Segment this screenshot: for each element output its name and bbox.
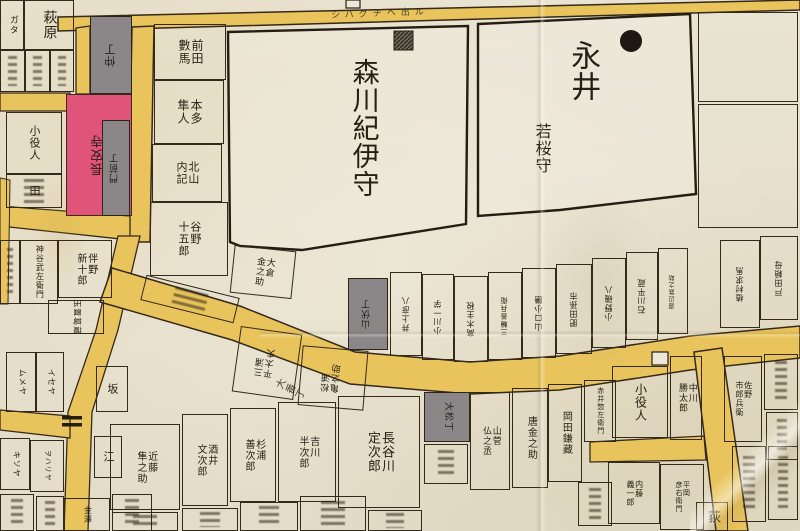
plot-akai-label: 赤井惣左衛門 <box>596 387 604 435</box>
plot-corner-1 <box>0 494 34 531</box>
plot-naito: 内藤 義一郎 <box>608 462 660 524</box>
plot-band-n4-label: 三輪善兵衛 <box>501 296 509 336</box>
plot-koyakunin-east: 小役人 <box>612 366 668 438</box>
plot-small-2 <box>25 50 50 92</box>
plot-yamasuga: 山菅 仏之丞 <box>470 392 510 490</box>
plot-sakai: 酒井 文次郎 <box>182 414 228 506</box>
plot-row2-2 <box>182 508 238 531</box>
plot-sano-label: 佐野 市郎兵衛 <box>734 381 751 417</box>
plot-ne-empty-2 <box>698 104 798 228</box>
plot-owariya: ヲハリヤ <box>30 440 64 492</box>
plot-tamaki-label: 玉置葛蔵 <box>72 299 81 335</box>
plot-band-n10-label: 植村求馬 <box>736 266 745 302</box>
plot-band-n5-label: 山口小膳 <box>535 295 544 331</box>
plot-kitayama-naiki-label: 北山 内記 <box>175 161 199 185</box>
road-left-vertical-upper <box>76 26 90 94</box>
plot-east-1 <box>764 354 798 410</box>
plot-band-n8: 石川平蔵 <box>626 252 658 340</box>
plot-kisoya-label: キソヤ <box>11 451 20 478</box>
plot-band-n11-label: 戸田頼母 <box>775 260 784 296</box>
plot-okada-kamazo-label: 岡田鎌藏 <box>560 411 571 455</box>
plot-band-n1-label: 井上彦八 <box>402 296 411 332</box>
plot-monzencho-label: 門前丁 <box>111 153 121 183</box>
plot-koyakunin-east-label: 小役人 <box>634 383 647 422</box>
plot-band-n6: 肥田孫市 <box>556 264 592 354</box>
plot-band-n4: 三輪善兵衛 <box>488 272 522 360</box>
plot-kata-label: ガタ <box>7 15 17 35</box>
plot-hagiwara: 萩原 <box>24 0 74 50</box>
plot-tamaki: 玉置葛蔵 <box>48 300 104 334</box>
plot-ne-empty-1 <box>698 12 798 102</box>
plot-mumeya: ムメヤ <box>6 352 36 412</box>
plot-band-n3-label: 高木主税 <box>467 301 476 337</box>
plot-band-n9-label: 渡辺鉄之助 <box>670 274 676 309</box>
plot-hasegawa-label: 長谷川 定次郎 <box>365 431 393 473</box>
plot-kondo-label: 近藤 隼之助 <box>134 451 156 484</box>
plot-kamiya-label: 神谷武左衛門 <box>35 245 44 299</box>
plot-yoshikawa-label: 吉川 半次郎 <box>296 436 318 469</box>
plot-band-n5: 山口小膳 <box>522 268 556 358</box>
plot-nakacho-label: 仲丁 <box>105 43 117 67</box>
plot-naito-label: 内藤 義一郎 <box>625 480 642 507</box>
plot-banno-label: 伴野 新十郎 <box>74 253 96 286</box>
edo-kiriezu-map: ガタ萩原小役人田神谷武左衛門伴野 新十郎玉置葛蔵ムメヤイセヤ坂江ヲハリヤキソヤ金… <box>0 0 800 531</box>
plot-sakai-label: 酒井 文次郎 <box>194 444 216 477</box>
plot-band-n9: 渡辺鉄之助 <box>658 248 688 334</box>
plot-band-n6-label: 肥田孫市 <box>570 291 579 327</box>
plot-kata: ガタ <box>0 0 24 50</box>
plot-maeda-kazuma: 前田 數馬 <box>154 24 226 80</box>
plot-small-1 <box>0 50 25 92</box>
plot-band-s2-label: 松浦 亀之助 <box>322 362 344 394</box>
plot-okura-kinnosuke: 大倉 金之助 <box>230 245 297 299</box>
plot-saka: 坂 <box>96 366 128 412</box>
plot-honda-hayato-label: 本多 隼人 <box>176 99 202 125</box>
plot-kisoya: キソヤ <box>0 438 30 490</box>
road-southwest-stub <box>0 410 70 438</box>
plot-nakagawa-katsutaro: 中川 勝太郎 <box>670 356 702 440</box>
label-morikawa-label: 森川紀伊守 <box>348 58 377 198</box>
road-west-stub <box>0 93 70 111</box>
label-morikawa: 森川紀伊守 <box>330 38 396 218</box>
plot-band-n7-label: 小野磯八 <box>605 285 614 321</box>
plot-kuji <box>0 240 20 304</box>
plot-band-n2-label: 小川一学 <box>434 299 443 335</box>
label-wakasanokami: 若桜守 <box>522 98 562 198</box>
plot-kanazawa: 金澤 <box>64 498 110 531</box>
plot-mumeya-label: ムメヤ <box>17 369 26 396</box>
morikawa-crest-marker <box>394 31 413 50</box>
plot-sugiura: 杉浦 善次郎 <box>230 408 276 502</box>
plot-yoshikawa: 吉川 半次郎 <box>278 402 336 502</box>
plot-iseya-label: イセヤ <box>46 369 55 396</box>
plot-koyakunin-west: 小役人 <box>6 112 62 174</box>
label-wakasanokami-label: 若桜守 <box>533 123 550 174</box>
plot-hagiwara-label: 萩原 <box>41 10 56 40</box>
plot-band-n1: 井上彦八 <box>390 272 422 356</box>
label-nagai-label: 永井 <box>566 40 598 102</box>
plot-row2-1 <box>112 512 178 531</box>
plot-kitayama-naiki: 北山 内記 <box>152 144 222 202</box>
plot-yano-jugoro-label: 谷野 十五郎 <box>177 221 201 257</box>
plot-yano-jugoro: 谷野 十五郎 <box>150 202 228 276</box>
plot-monzencho: 門前丁 <box>102 120 130 216</box>
plot-corner-2 <box>36 496 64 531</box>
plot-koyakunin-west-label: 小役人 <box>28 125 40 161</box>
plot-karakane-label: 唐金之助 <box>525 416 536 460</box>
plot-kanazawa-label: 金澤 <box>83 506 92 524</box>
plot-band-n8-label: 石川平蔵 <box>638 278 647 314</box>
plot-kondo: 近藤 隼之助 <box>110 424 180 510</box>
plot-nakacho: 仲丁 <box>90 16 132 94</box>
plot-banno: 伴野 新十郎 <box>58 240 112 298</box>
plot-row2-5 <box>368 510 422 531</box>
guardpost-marker-east <box>652 352 668 365</box>
plot-saka-label: 坂 <box>106 383 118 395</box>
plot-band-n11: 戸田頼母 <box>760 236 798 320</box>
plot-row2-3 <box>240 502 298 531</box>
plot-owariya-label: ヲハリヤ <box>43 450 51 482</box>
plot-row2-4 <box>300 496 366 531</box>
plot-yamasuga-label: 山菅 仏之丞 <box>480 426 499 456</box>
label-nagai: 永井 <box>556 30 608 112</box>
nagai-daimyo-dot <box>620 30 642 52</box>
plot-hiki <box>578 482 612 526</box>
plot-karakane: 唐金之助 <box>512 388 548 488</box>
plot-honda-hayato: 本多 隼人 <box>154 80 224 144</box>
plot-hasegawa: 長谷川 定次郎 <box>338 396 420 508</box>
plot-hiraoka-label: 平岡 彦右衛門 <box>674 481 689 513</box>
plot-east-3 <box>732 446 766 522</box>
plot-sugiura-label: 杉浦 善次郎 <box>242 439 264 472</box>
label-road-note-label: シバグチヘ出ル <box>331 8 429 21</box>
plot-okura-kinnosuke-label: 大倉 金之助 <box>252 256 274 288</box>
plot-sano: 佐野 市郎兵衛 <box>724 356 762 442</box>
plot-band-n7: 小野磯八 <box>592 258 626 348</box>
plot-band-n2: 小川一学 <box>422 274 454 360</box>
plot-iseya: イセヤ <box>36 352 64 412</box>
plot-row2-6 <box>424 444 468 484</box>
plot-band-n10: 植村求馬 <box>720 240 760 328</box>
plot-ta-label: 田 <box>28 185 40 197</box>
plot-maeda-kazuma-label: 前田 數馬 <box>177 39 203 65</box>
plot-kamiya: 神谷武左衛門 <box>20 240 58 304</box>
plot-band-n3: 高木主税 <box>454 276 488 362</box>
plot-ogi: 荻 <box>696 502 728 531</box>
plot-ta: 田 <box>6 174 62 208</box>
plot-omatsucho: 大松丁 <box>424 392 470 442</box>
plot-ogi-label: 荻 <box>705 510 719 524</box>
plot-small-3 <box>50 50 74 92</box>
plot-yamabushicho: 山伏丁 <box>348 278 388 350</box>
plot-east-4 <box>768 446 798 520</box>
plot-okada-kamazo: 岡田鎌藏 <box>548 384 582 482</box>
plot-yamabushicho-label: 山伏丁 <box>363 299 373 329</box>
plot-nakagawa-katsutaro-label: 中川 勝太郎 <box>676 383 695 413</box>
plot-omatsucho-label: 大松丁 <box>442 402 452 432</box>
